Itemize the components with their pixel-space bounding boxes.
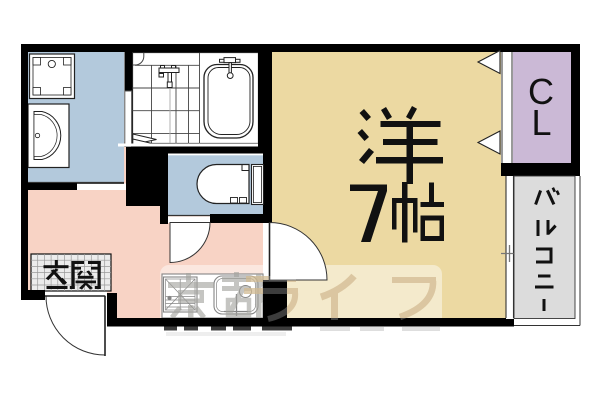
svg-text:L: L: [531, 102, 551, 143]
